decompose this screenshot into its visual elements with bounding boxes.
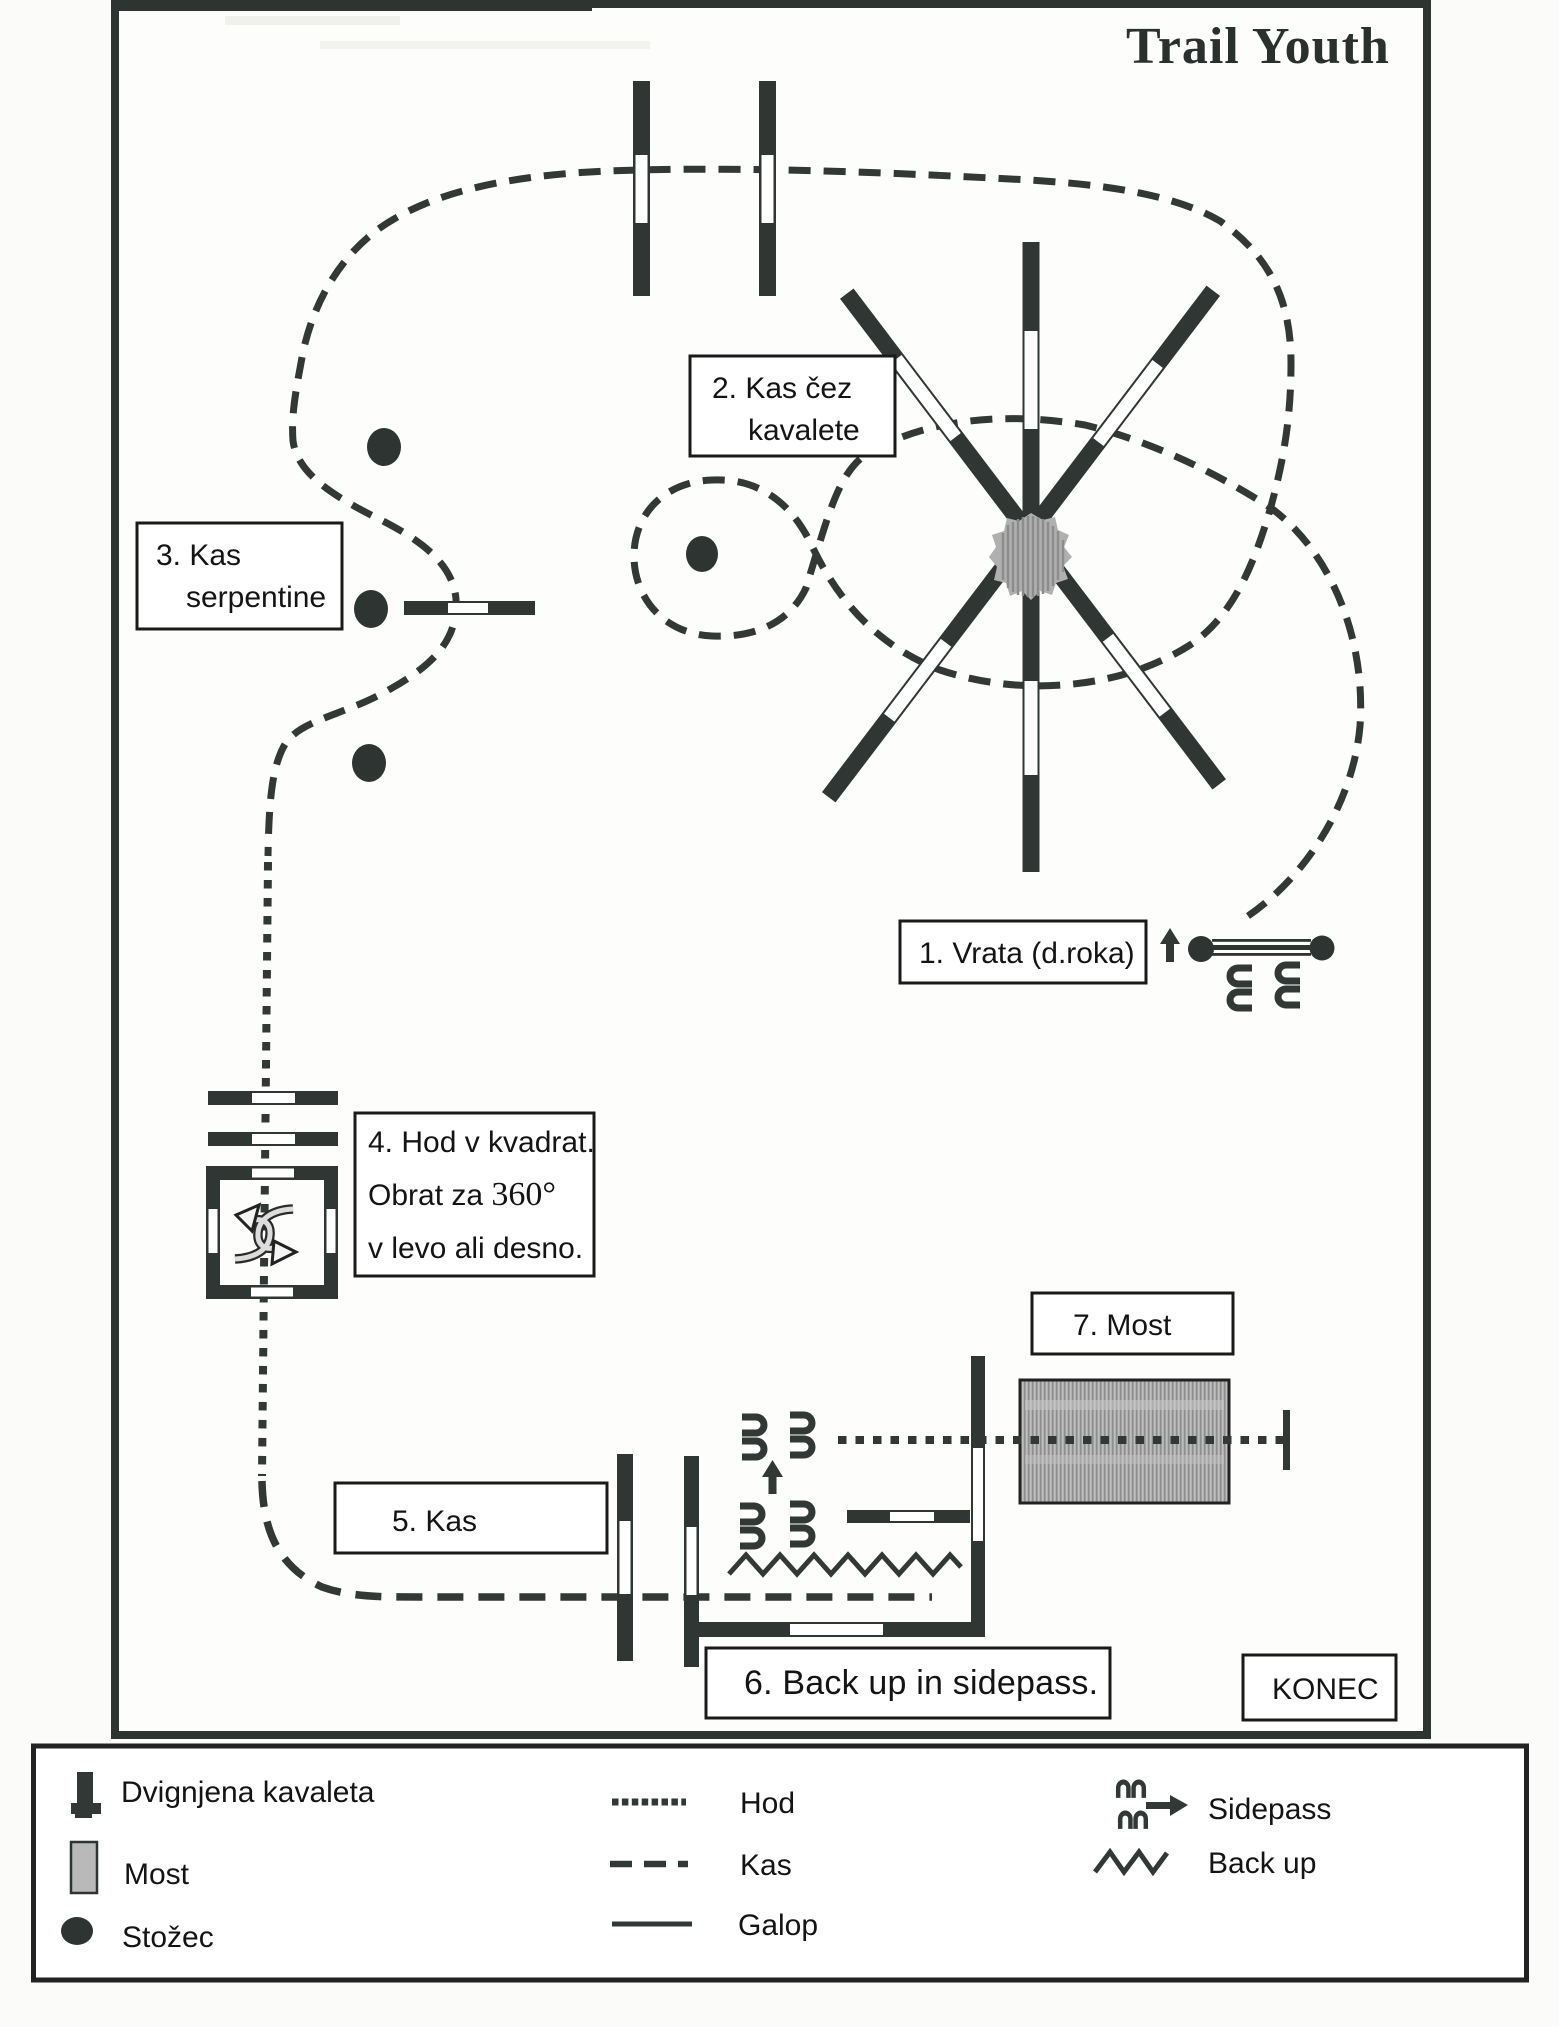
svg-text:3. Kas: 3. Kas (156, 539, 241, 572)
svg-text:Galop: Galop (738, 1909, 818, 1942)
svg-text:4. Hod v kvadrat.: 4. Hod v kvadrat. (368, 1126, 595, 1159)
svg-text:v levo ali desno.: v levo ali desno. (368, 1232, 583, 1265)
svg-text:Stožec: Stožec (122, 1921, 214, 1954)
svg-text:Most: Most (124, 1858, 190, 1891)
svg-text:2. Kas čez: 2. Kas čez (712, 372, 852, 405)
svg-text:KONEC: KONEC (1272, 1673, 1379, 1706)
svg-text:7. Most: 7. Most (1073, 1309, 1172, 1342)
svg-text:Sidepass: Sidepass (1208, 1793, 1331, 1826)
svg-text:5. Kas: 5. Kas (392, 1505, 477, 1538)
svg-text:6. Back up in sidepass.: 6. Back up in sidepass. (744, 1664, 1098, 1702)
svg-text:Trail Youth: Trail Youth (1126, 18, 1390, 75)
svg-text:Hod: Hod (740, 1787, 795, 1820)
svg-text:serpentine: serpentine (186, 581, 326, 614)
svg-text:Dvignjena kavaleta: Dvignjena kavaleta (121, 1776, 375, 1809)
svg-text:1. Vrata (d.roka): 1. Vrata (d.roka) (919, 937, 1135, 970)
svg-text:Back up: Back up (1208, 1847, 1316, 1880)
svg-text:Obrat za 360°: Obrat za 360° (368, 1176, 556, 1213)
svg-text:Kas: Kas (740, 1849, 792, 1882)
svg-text:kavalete: kavalete (748, 414, 860, 447)
